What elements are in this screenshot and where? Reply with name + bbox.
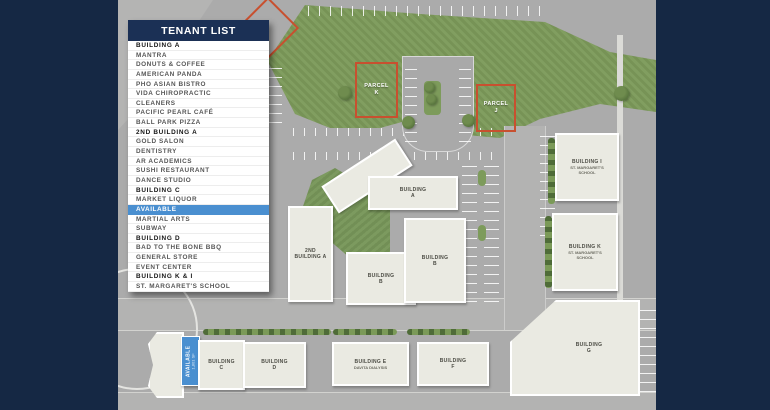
- hedge-strip: [545, 216, 552, 288]
- tenant-row: DONUTS & COFFEE: [128, 60, 269, 70]
- parking-stripes: [640, 302, 656, 392]
- tenant-row: BUILDING A: [128, 41, 269, 51]
- tenant-row: PHO ASIAN BISTRO: [128, 80, 269, 90]
- building-e: BUILDING E DAVITA DIALYSIS: [332, 342, 409, 386]
- landscape-island: [478, 170, 486, 186]
- building-f: BUILDING F: [417, 342, 489, 386]
- tenant-row: CLEANERS: [128, 99, 269, 109]
- tenant-row: SUSHI RESTAURANT: [128, 166, 269, 176]
- landscape-island: [478, 225, 486, 241]
- building-unlabeled: [148, 332, 184, 398]
- building-k: BUILDING K ST. MARGARET'S SCHOOL: [552, 213, 618, 291]
- available-unit-label: AVAILABLE 1,801 SF: [185, 345, 196, 376]
- building-d: BUILDING D: [243, 342, 306, 388]
- tree-marker: [614, 86, 629, 101]
- site-plan-page: PARCEL K PARCEL J BUILDING A 2ND BUILDIN…: [0, 0, 770, 410]
- building-c: BUILDING C: [198, 340, 245, 390]
- tenant-row: DENTISTRY: [128, 147, 269, 157]
- tenant-row: BUILDING C: [128, 186, 269, 196]
- parking-stripes: [298, 6, 548, 16]
- tenant-row: ST. MARGARET'S SCHOOL: [128, 282, 269, 292]
- tenant-row: BUILDING D: [128, 234, 269, 244]
- tenant-row: MANTRA: [128, 51, 269, 61]
- tenant-row: BAD TO THE BONE BBQ: [128, 243, 269, 253]
- building-b-east: BUILDING B: [404, 218, 466, 303]
- tenant-row: BALL PARK PIZZA: [128, 118, 269, 128]
- tenant-row: EVENT CENTER: [128, 263, 269, 273]
- tenant-row: GENERAL STORE: [128, 253, 269, 263]
- tenant-row: MARTIAL ARTS: [128, 215, 269, 225]
- building-2nd-a: 2ND BUILDING A: [288, 206, 333, 302]
- hedge-strip: [333, 329, 397, 335]
- parking-stripes: [268, 60, 282, 130]
- tenant-row: BUILDING K & I: [128, 272, 269, 282]
- tenant-row: DANCE STUDIO: [128, 176, 269, 186]
- tenant-row: VIDA CHIROPRACTIC: [128, 89, 269, 99]
- tenant-list-panel: TENANT LIST BUILDING A MANTRA DONUTS & C…: [128, 20, 269, 292]
- tenant-row: PACIFIC PEARL CAFÉ: [128, 108, 269, 118]
- parcel-k: PARCEL K: [355, 62, 398, 118]
- parking-stripes: [459, 61, 471, 143]
- parking-stripes: [405, 61, 417, 143]
- tenant-list: BUILDING A MANTRA DONUTS & COFFEE AMERIC…: [128, 41, 269, 292]
- parcel-j: PARCEL J: [476, 84, 516, 132]
- tenant-list-title: TENANT LIST: [128, 20, 269, 41]
- tree-marker: [338, 86, 352, 100]
- tenant-row-available: AVAILABLE: [128, 205, 269, 215]
- tenant-row: GOLD SALON: [128, 137, 269, 147]
- tenant-row: AMERICAN PANDA: [128, 70, 269, 80]
- parking-lot-north: [402, 56, 474, 152]
- building-i: BUILDING I ST. MARGARET'S SCHOOL: [555, 133, 619, 201]
- hedge-strip: [203, 329, 331, 335]
- tree-marker: [402, 116, 415, 129]
- hedge-strip: [548, 138, 555, 204]
- building-a: BUILDING A: [368, 176, 458, 210]
- hedge-strip: [407, 329, 470, 335]
- tenant-row: 2ND BUILDING A: [128, 128, 269, 138]
- parking-stripes: [484, 158, 499, 303]
- tree-marker: [462, 114, 475, 127]
- tenant-row: SUBWAY: [128, 224, 269, 234]
- tree-marker: [426, 94, 437, 105]
- tenant-row: MARKET LIQUOR: [128, 195, 269, 205]
- tenant-row: AR ACADEMICS: [128, 157, 269, 167]
- tree-marker: [424, 82, 435, 93]
